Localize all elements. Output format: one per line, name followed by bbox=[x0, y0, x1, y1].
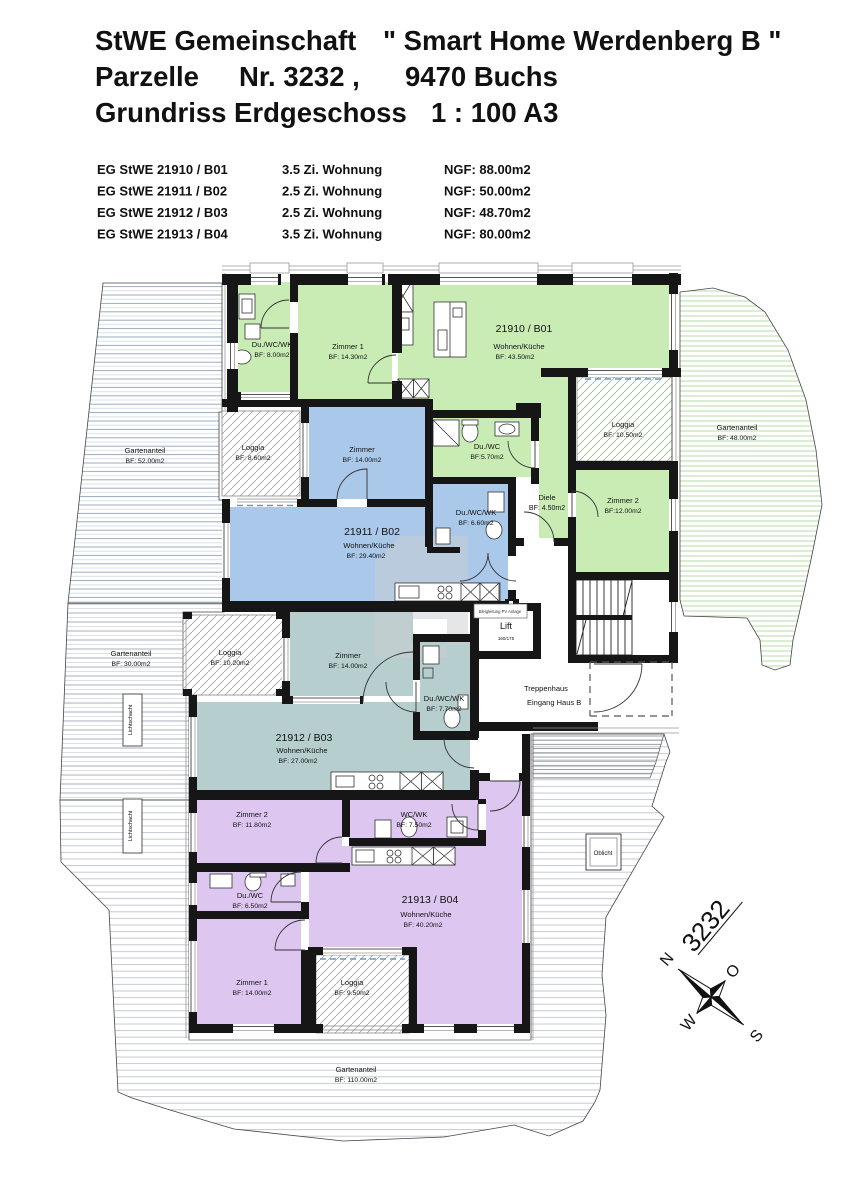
svg-text:Wohnen/Küche: Wohnen/Küche bbox=[343, 541, 394, 550]
svg-text:Gartenanteil: Gartenanteil bbox=[336, 1065, 377, 1074]
svg-text:BF: 29.40m2: BF: 29.40m2 bbox=[347, 553, 386, 560]
svg-text:160/175: 160/175 bbox=[498, 636, 515, 641]
svg-text:Nr. 3232 ,: Nr. 3232 , bbox=[239, 61, 360, 92]
svg-text:BF: 30.00m2: BF: 30.00m2 bbox=[112, 661, 151, 668]
svg-text:BF: 7.70m2: BF: 7.70m2 bbox=[426, 706, 461, 713]
svg-text:BF: 6.50m2: BF: 6.50m2 bbox=[232, 903, 267, 910]
svg-text:Zimmer 2: Zimmer 2 bbox=[607, 496, 639, 505]
svg-text:EG StWE 21912 / B03: EG StWE 21912 / B03 bbox=[97, 205, 228, 220]
svg-text:BF: 110.00m2: BF: 110.00m2 bbox=[335, 1077, 377, 1084]
svg-text:BF: 40.20m2: BF: 40.20m2 bbox=[404, 922, 443, 929]
svg-text:Loggia: Loggia bbox=[219, 648, 242, 657]
svg-text:BF: 8.00m2: BF: 8.00m2 bbox=[254, 352, 289, 359]
svg-text:Du./WC/WK: Du./WC/WK bbox=[424, 694, 464, 703]
svg-text:1 : 100 A3: 1 : 100 A3 bbox=[431, 97, 558, 128]
svg-text:Du./WC: Du./WC bbox=[237, 891, 264, 900]
svg-text:EG StWE 21913 / B04: EG StWE 21913 / B04 bbox=[97, 227, 229, 242]
svg-text:Loggia: Loggia bbox=[612, 420, 635, 429]
svg-text:Treppenhaus: Treppenhaus bbox=[524, 684, 568, 693]
svg-text:Diele: Diele bbox=[538, 493, 555, 502]
svg-text:EG StWE 21911 / B02: EG StWE 21911 / B02 bbox=[97, 184, 227, 199]
svg-text:EG StWE 21910 / B01: EG StWE 21910 / B01 bbox=[97, 162, 228, 177]
svg-text:StWE Gemeinschaft: StWE Gemeinschaft bbox=[95, 25, 356, 56]
svg-text:BF: 7.50m2: BF: 7.50m2 bbox=[396, 822, 431, 829]
svg-text:BF:5.70m2: BF:5.70m2 bbox=[470, 454, 503, 461]
svg-text:Zimmer: Zimmer bbox=[349, 445, 375, 454]
svg-text:Gartenanteil: Gartenanteil bbox=[111, 649, 152, 658]
svg-text:Wohnen/Küche: Wohnen/Küche bbox=[400, 910, 451, 919]
svg-text:Lichtschacht: Lichtschacht bbox=[128, 810, 134, 841]
svg-text:BF: 52.00m2: BF: 52.00m2 bbox=[126, 458, 165, 465]
svg-text:Du./WC/WK: Du./WC/WK bbox=[456, 508, 496, 517]
svg-text:Du./WC/WK: Du./WC/WK bbox=[252, 340, 292, 349]
svg-text:21913 / B04: 21913 / B04 bbox=[402, 894, 459, 906]
svg-text:BF: 8.60m2: BF: 8.60m2 bbox=[235, 455, 270, 462]
svg-text:WC/WK: WC/WK bbox=[401, 810, 428, 819]
svg-text:Zimmer 1: Zimmer 1 bbox=[236, 978, 268, 987]
svg-text:Loggia: Loggia bbox=[242, 443, 265, 452]
svg-text:BF: 10.50m2: BF: 10.50m2 bbox=[604, 432, 643, 439]
svg-text:Parzelle: Parzelle bbox=[95, 61, 199, 92]
svg-text:2.5 Zi. Wohnung: 2.5 Zi. Wohnung bbox=[282, 184, 382, 199]
svg-text:Lift: Lift bbox=[500, 621, 513, 631]
svg-text:Zimmer 2: Zimmer 2 bbox=[236, 810, 268, 819]
svg-text:21912 / B03: 21912 / B03 bbox=[276, 732, 333, 744]
svg-text:21910 / B01: 21910 / B01 bbox=[496, 323, 553, 335]
svg-text:Zimmer: Zimmer bbox=[335, 651, 361, 660]
svg-text:Wohnen/Küche: Wohnen/Küche bbox=[276, 746, 327, 755]
svg-text:2.5 Zi. Wohnung: 2.5 Zi. Wohnung bbox=[282, 205, 382, 220]
svg-text:BF: 14.00m2: BF: 14.00m2 bbox=[343, 457, 382, 464]
svg-text:BF: 14.30m2: BF: 14.30m2 bbox=[329, 354, 368, 361]
svg-text:3.5 Zi. Wohnung: 3.5 Zi. Wohnung bbox=[282, 227, 382, 242]
svg-text:BF: 27.00m2: BF: 27.00m2 bbox=[279, 758, 318, 765]
svg-text:3.5 Zi. Wohnung: 3.5 Zi. Wohnung bbox=[282, 162, 382, 177]
svg-text:Gartenanteil: Gartenanteil bbox=[717, 423, 758, 432]
svg-text:NGF: 80.00m2: NGF: 80.00m2 bbox=[444, 227, 531, 242]
svg-text:NGF: 48.70m2: NGF: 48.70m2 bbox=[444, 205, 531, 220]
svg-text:Eingang Haus B: Eingang Haus B bbox=[527, 698, 581, 707]
svg-text:BF: 48.00m2: BF: 48.00m2 bbox=[718, 435, 757, 442]
svg-text:Grundriss Erdgeschoss: Grundriss Erdgeschoss bbox=[95, 97, 407, 128]
svg-text:NGF: 88.00m2: NGF: 88.00m2 bbox=[444, 162, 531, 177]
svg-text:Lichtschacht: Lichtschacht bbox=[128, 704, 134, 735]
svg-text:BF: 43.50m2: BF: 43.50m2 bbox=[496, 354, 535, 361]
svg-text:" Smart Home Werdenberg B ": " Smart Home Werdenberg B " bbox=[383, 25, 781, 56]
svg-text:Oblicht: Oblicht bbox=[594, 851, 613, 857]
svg-text:BF: 11.80m2: BF: 11.80m2 bbox=[233, 822, 272, 829]
svg-text:Wohnen/Küche: Wohnen/Küche bbox=[493, 342, 544, 351]
svg-text:Zimmer 1: Zimmer 1 bbox=[332, 342, 364, 351]
svg-text:Gartenanteil: Gartenanteil bbox=[125, 446, 166, 455]
svg-text:9470 Buchs: 9470 Buchs bbox=[405, 61, 558, 92]
svg-text:BF: 6.60m2: BF: 6.60m2 bbox=[458, 520, 493, 527]
svg-text:21911 / B02: 21911 / B02 bbox=[344, 526, 400, 538]
svg-text:Du./WC: Du./WC bbox=[474, 442, 501, 451]
svg-text:BF: 14.00m2: BF: 14.00m2 bbox=[329, 663, 368, 670]
svg-text:Loggia: Loggia bbox=[341, 978, 364, 987]
svg-text:BF: 4.50m2: BF: 4.50m2 bbox=[529, 505, 565, 512]
svg-text:NGF: 50.00m2: NGF: 50.00m2 bbox=[444, 184, 531, 199]
svg-text:Bleigleitung PV Anlage: Bleigleitung PV Anlage bbox=[479, 609, 522, 614]
svg-text:BF: 10.20m2: BF: 10.20m2 bbox=[211, 660, 250, 667]
svg-text:BF: 9.50m2: BF: 9.50m2 bbox=[334, 990, 369, 997]
svg-text:BF: 14.00m2: BF: 14.00m2 bbox=[233, 990, 272, 997]
svg-text:BF:12.00m2: BF:12.00m2 bbox=[604, 508, 641, 515]
